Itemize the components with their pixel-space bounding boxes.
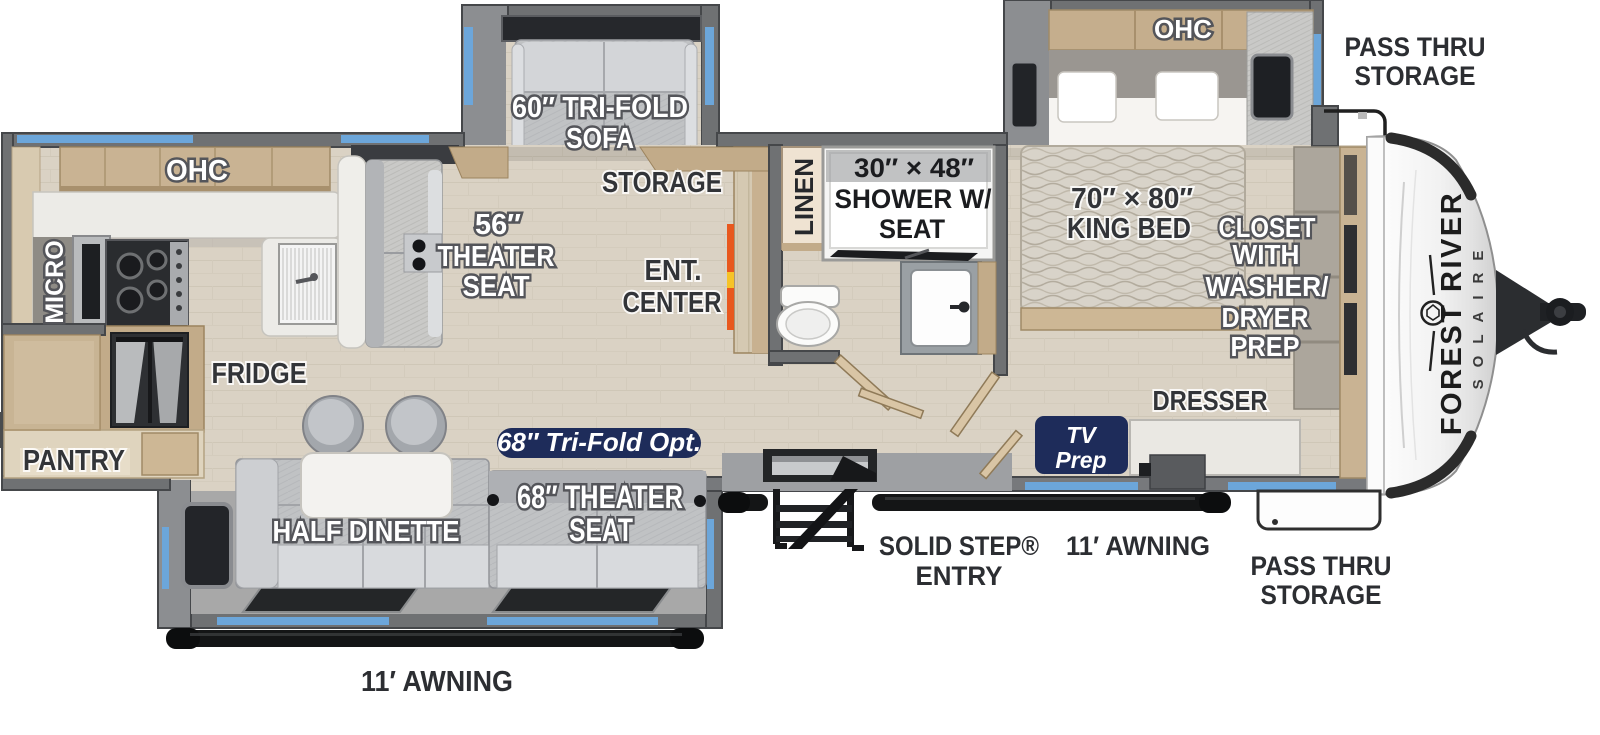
svg-text:SEAT: SEAT <box>463 271 530 303</box>
svg-text:STORAGE: STORAGE <box>602 167 722 199</box>
svg-text:OHC: OHC <box>1154 14 1212 44</box>
svg-text:TV: TV <box>1066 422 1097 448</box>
svg-text:MICRO: MICRO <box>41 240 69 323</box>
svg-text:DRESSER: DRESSER <box>1153 385 1268 416</box>
svg-text:30″ × 48″: 30″ × 48″ <box>854 153 974 183</box>
svg-text:OHC: OHC <box>166 155 228 187</box>
svg-text:LINEN: LINEN <box>789 158 819 236</box>
svg-text:SOFA: SOFA <box>566 123 634 155</box>
svg-text:FRIDGE: FRIDGE <box>212 358 307 390</box>
svg-text:WITH: WITH <box>1233 239 1300 270</box>
svg-text:PASS THRU: PASS THRU <box>1251 551 1392 581</box>
svg-text:60″ TRI-FOLD: 60″ TRI-FOLD <box>512 92 688 124</box>
svg-text:56″: 56″ <box>475 209 521 241</box>
svg-text:HALF DINETTE: HALF DINETTE <box>273 516 460 548</box>
svg-text:11′ AWNING: 11′ AWNING <box>361 666 513 698</box>
svg-text:68″ Tri-Fold Opt.: 68″ Tri-Fold Opt. <box>497 427 701 457</box>
svg-text:KING BED: KING BED <box>1067 213 1191 245</box>
svg-text:Prep: Prep <box>1055 447 1106 473</box>
svg-text:STORAGE: STORAGE <box>1261 580 1382 610</box>
svg-text:FOREST RIVER: FOREST RIVER <box>1436 191 1468 435</box>
svg-text:SEAT: SEAT <box>569 512 633 548</box>
svg-text:ENT.: ENT. <box>645 255 702 287</box>
svg-text:PREP: PREP <box>1231 331 1300 362</box>
svg-text:70″ × 80″: 70″ × 80″ <box>1071 183 1193 215</box>
svg-text:PASS THRU: PASS THRU <box>1345 32 1486 62</box>
svg-text:SHOWER W/: SHOWER W/ <box>835 184 992 214</box>
svg-text:SEAT: SEAT <box>879 214 945 244</box>
svg-text:11′ AWNING: 11′ AWNING <box>1066 531 1210 561</box>
svg-text:THEATER: THEATER <box>438 241 555 273</box>
svg-text:68″ THEATER: 68″ THEATER <box>517 479 683 515</box>
svg-text:SOLAIRE: SOLAIRE <box>1470 239 1487 390</box>
svg-text:SOLID STEP®: SOLID STEP® <box>879 531 1039 561</box>
svg-text:DRYER: DRYER <box>1222 302 1309 333</box>
svg-text:PANTRY: PANTRY <box>23 445 125 477</box>
svg-text:STORAGE: STORAGE <box>1355 61 1476 91</box>
svg-text:CENTER: CENTER <box>623 287 722 319</box>
svg-text:ENTRY: ENTRY <box>916 561 1003 591</box>
svg-text:WASHER/: WASHER/ <box>1206 271 1329 302</box>
